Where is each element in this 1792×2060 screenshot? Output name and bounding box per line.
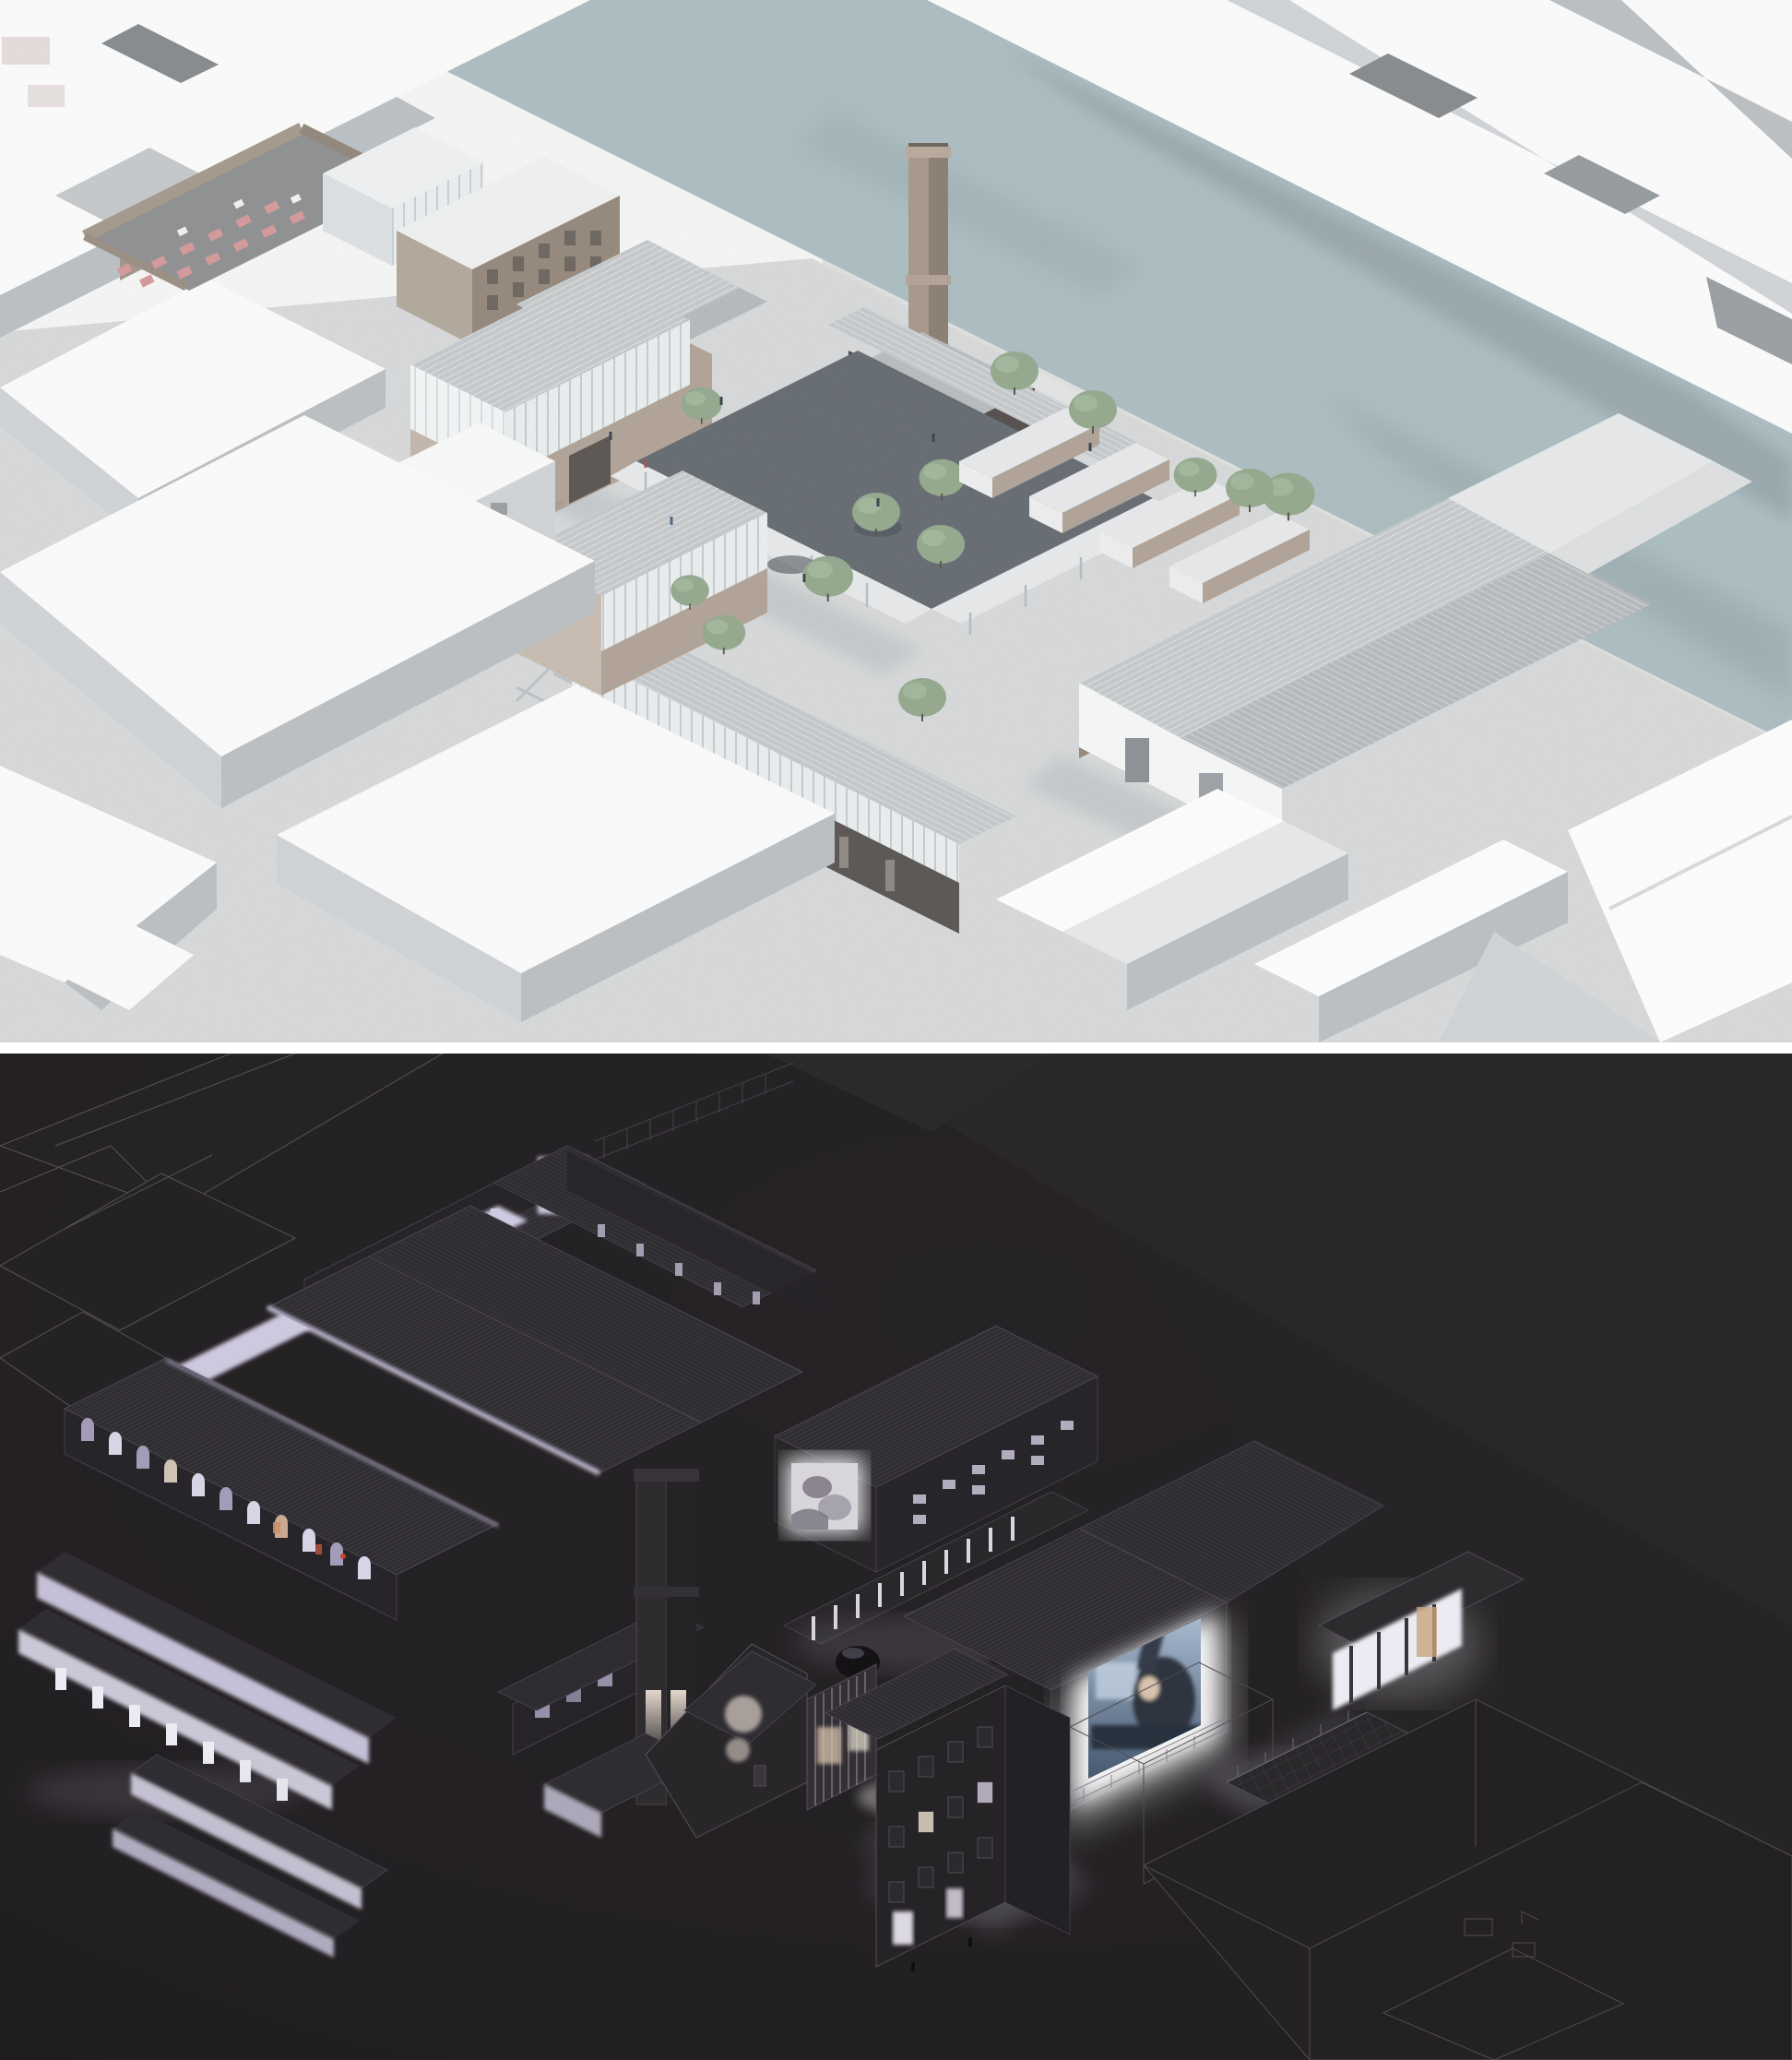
visualization-board	[0, 0, 1792, 2060]
film-grain-overlay	[0, 0, 1792, 1042]
day-render-panel	[0, 0, 1792, 1042]
small-screen	[791, 1463, 858, 1530]
panel-divider	[0, 1042, 1792, 1054]
night-render-panel	[0, 1054, 1792, 2060]
